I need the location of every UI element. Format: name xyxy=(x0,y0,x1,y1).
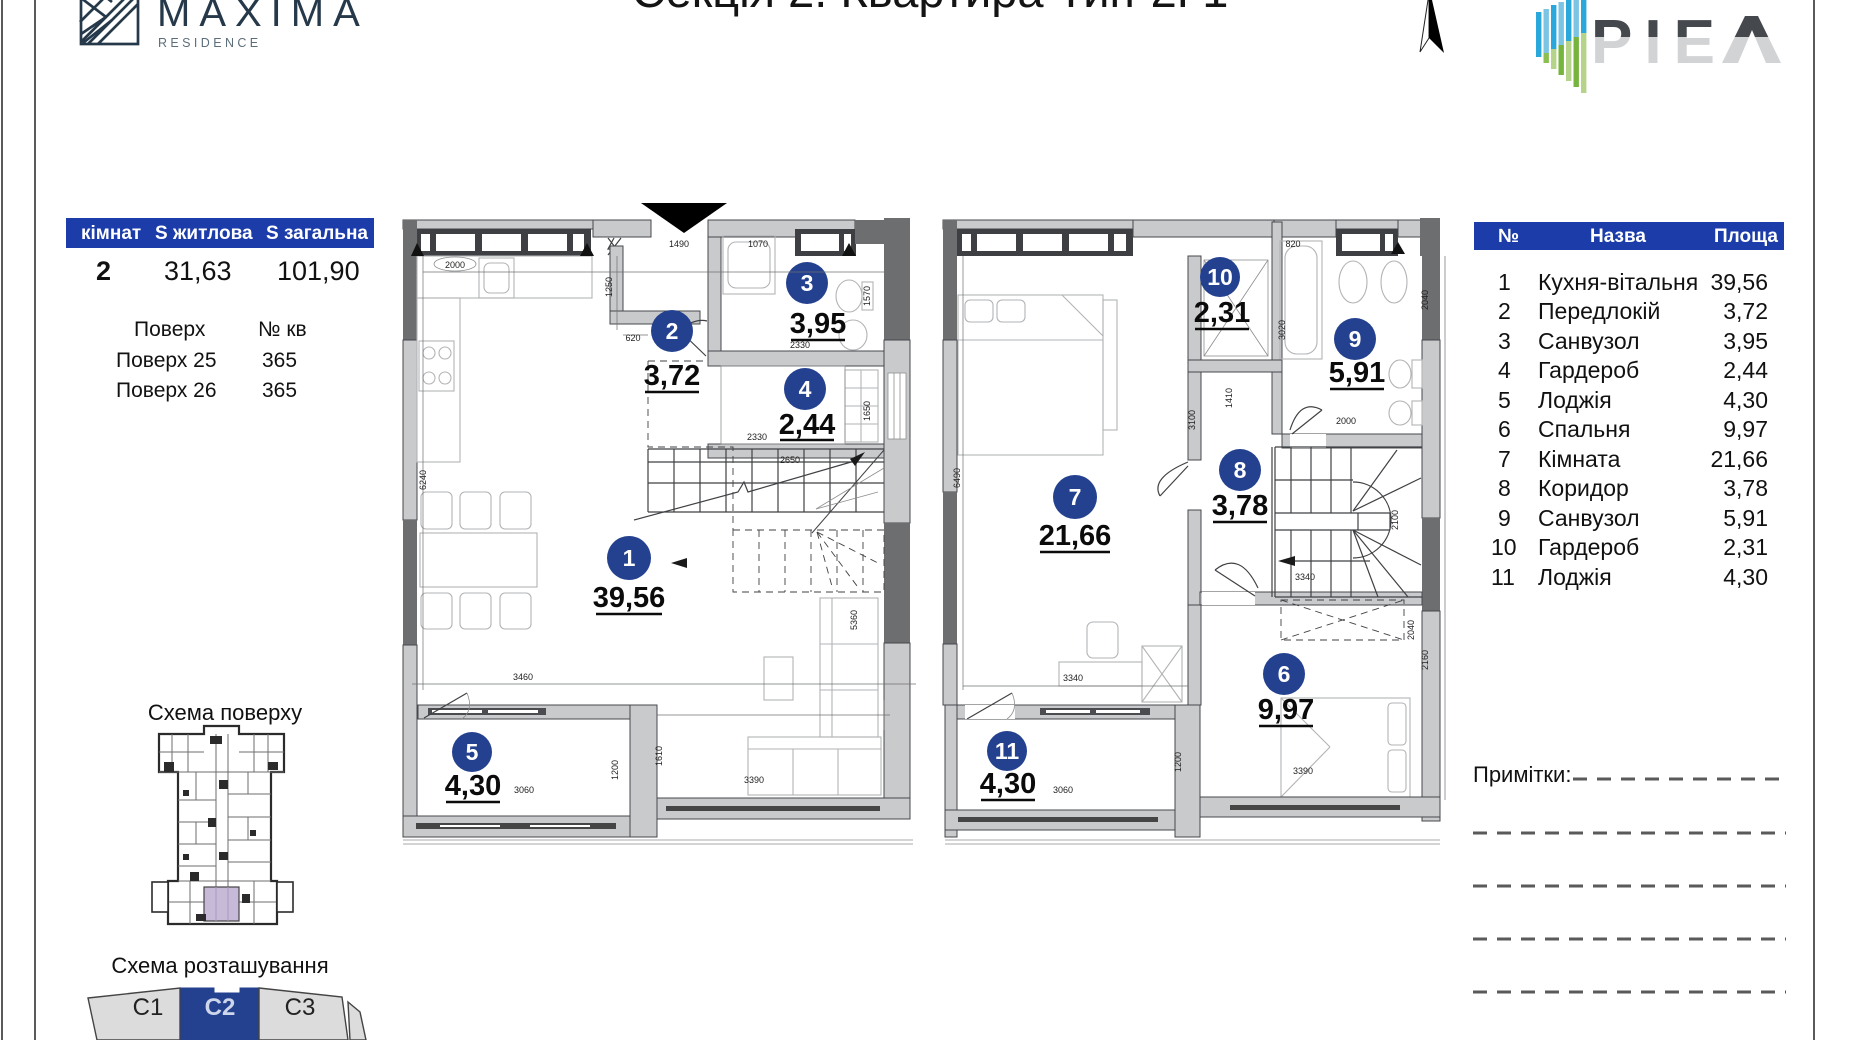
svg-text:1610: 1610 xyxy=(654,746,664,766)
svg-text:3,95: 3,95 xyxy=(790,308,846,340)
svg-text:3,72: 3,72 xyxy=(644,360,700,392)
svg-text:4,30: 4,30 xyxy=(980,768,1036,800)
svg-text:3460: 3460 xyxy=(513,672,533,682)
svg-text:3390: 3390 xyxy=(1293,766,1313,776)
svg-text:3340: 3340 xyxy=(1063,673,1083,683)
svg-text:4: 4 xyxy=(799,376,812,402)
svg-text:1410: 1410 xyxy=(1224,388,1234,408)
svg-text:8: 8 xyxy=(1234,457,1247,483)
svg-text:3060: 3060 xyxy=(1053,785,1073,795)
svg-text:1: 1 xyxy=(623,545,636,571)
svg-text:1200: 1200 xyxy=(610,760,620,780)
svg-text:39,56: 39,56 xyxy=(593,582,666,614)
svg-text:C1: C1 xyxy=(133,994,164,1021)
svg-text:C2: C2 xyxy=(205,994,236,1021)
svg-text:5: 5 xyxy=(466,739,479,765)
svg-text:3,78: 3,78 xyxy=(1212,490,1268,522)
svg-text:21,66: 21,66 xyxy=(1039,520,1112,552)
svg-text:5360: 5360 xyxy=(849,610,859,630)
svg-text:2,31: 2,31 xyxy=(1194,297,1250,329)
svg-text:1250: 1250 xyxy=(604,277,614,297)
svg-text:5,91: 5,91 xyxy=(1329,357,1385,389)
svg-text:3100: 3100 xyxy=(1187,410,1197,430)
svg-text:11: 11 xyxy=(995,738,1020,764)
svg-text:2: 2 xyxy=(666,318,679,344)
svg-text:2330: 2330 xyxy=(790,340,810,350)
svg-text:2100: 2100 xyxy=(1390,510,1400,530)
svg-text:3340: 3340 xyxy=(1295,572,1315,582)
svg-text:2040: 2040 xyxy=(1406,620,1416,640)
svg-text:3020: 3020 xyxy=(1277,320,1287,340)
svg-text:MAXIMA: MAXIMA xyxy=(157,0,369,35)
svg-text:6: 6 xyxy=(1278,661,1291,687)
svg-text:6490: 6490 xyxy=(952,468,962,488)
svg-text:3060: 3060 xyxy=(514,785,534,795)
svg-text:3390: 3390 xyxy=(744,775,764,785)
svg-text:2000: 2000 xyxy=(1336,416,1356,426)
svg-text:2040: 2040 xyxy=(1420,290,1430,310)
svg-text:1650: 1650 xyxy=(862,401,872,421)
svg-text:2650: 2650 xyxy=(780,455,800,465)
svg-text:1200: 1200 xyxy=(1173,752,1183,772)
svg-text:9: 9 xyxy=(1349,326,1362,352)
svg-text:РІЕ: РІЕ xyxy=(1591,8,1727,77)
svg-text:2,44: 2,44 xyxy=(779,409,835,441)
svg-text:4,30: 4,30 xyxy=(445,770,501,802)
svg-text:C3: C3 xyxy=(285,994,316,1021)
svg-text:RESIDENCE: RESIDENCE xyxy=(158,36,262,50)
svg-text:2160: 2160 xyxy=(1420,650,1430,670)
svg-text:9,97: 9,97 xyxy=(1258,694,1314,726)
svg-text:2000: 2000 xyxy=(445,260,465,270)
svg-text:1490: 1490 xyxy=(669,239,689,249)
svg-text:7: 7 xyxy=(1069,484,1082,510)
svg-text:620: 620 xyxy=(625,333,640,343)
svg-text:6240: 6240 xyxy=(418,470,428,490)
svg-text:820: 820 xyxy=(1285,239,1300,249)
svg-text:3: 3 xyxy=(801,270,814,296)
svg-text:2330: 2330 xyxy=(747,432,767,442)
svg-text:10: 10 xyxy=(1207,264,1233,290)
svg-text:1070: 1070 xyxy=(748,239,768,249)
svg-text:1570: 1570 xyxy=(862,286,872,306)
